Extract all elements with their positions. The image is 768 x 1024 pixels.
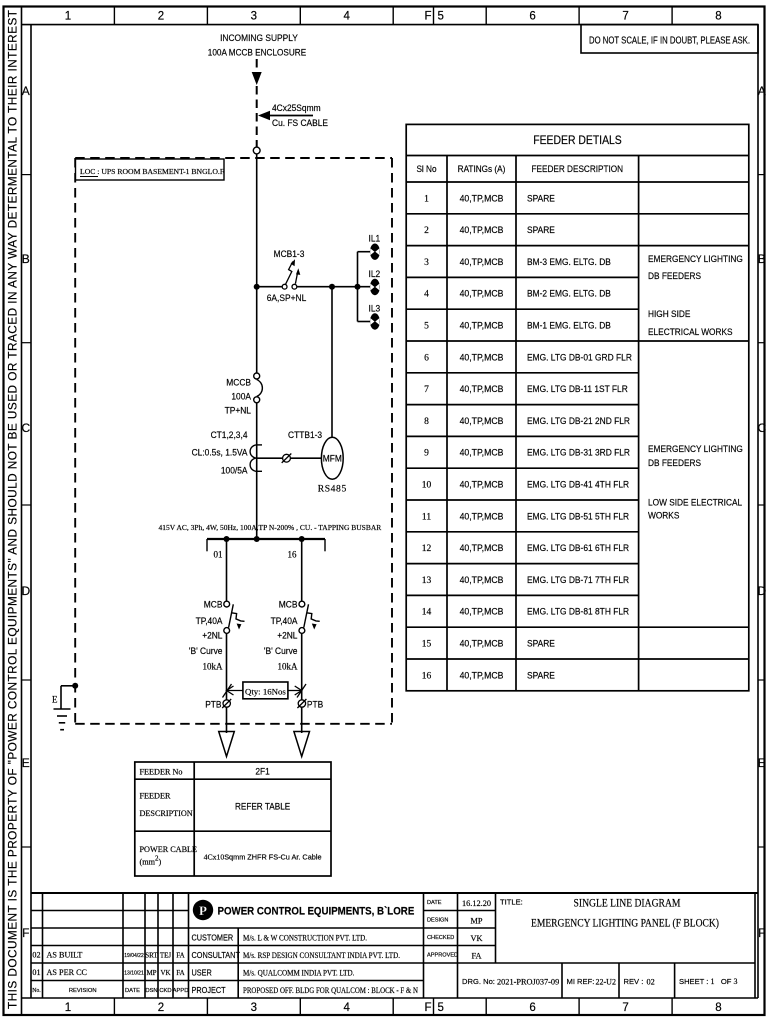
svg-text:4: 4 bbox=[343, 1002, 350, 1014]
svg-text:CKD: CKD bbox=[159, 988, 171, 994]
svg-text:8: 8 bbox=[715, 11, 721, 23]
svg-text:Cu. FS CABLE: Cu. FS CABLE bbox=[272, 117, 328, 128]
svg-text:EMG. LTG DB-81 8TH FLR: EMG. LTG DB-81 8TH FLR bbox=[527, 607, 629, 618]
svg-text:Sl No: Sl No bbox=[416, 164, 436, 174]
svg-text:MP: MP bbox=[146, 969, 156, 977]
svg-text:40,TP,MCB: 40,TP,MCB bbox=[460, 352, 504, 363]
svg-text:6: 6 bbox=[529, 11, 535, 23]
svg-text:CL:0.5s, 1.5VA: CL:0.5s, 1.5VA bbox=[192, 447, 249, 458]
svg-text:1: 1 bbox=[65, 1002, 71, 1014]
svg-text:415V AC, 3Ph, 4W, 50Hz, 100A,T: 415V AC, 3Ph, 4W, 50Hz, 100A,TP N-200% ,… bbox=[159, 523, 382, 532]
svg-text:13: 13 bbox=[422, 576, 432, 586]
svg-text:16: 16 bbox=[422, 671, 432, 681]
svg-text:01: 01 bbox=[32, 968, 40, 977]
svg-text:D: D bbox=[757, 584, 766, 598]
svg-text:BM-3 EMG. ELTG. DB: BM-3 EMG. ELTG. DB bbox=[527, 257, 611, 268]
svg-text:16: 16 bbox=[288, 550, 298, 560]
svg-text:7: 7 bbox=[622, 11, 628, 23]
svg-text:M/s. L & W CONSTRUCTION PVT. L: M/s. L & W CONSTRUCTION PVT. LTD. bbox=[243, 933, 367, 942]
svg-text:40,TP,MCB: 40,TP,MCB bbox=[460, 511, 504, 522]
svg-text:ELECTRICAL WORKS: ELECTRICAL WORKS bbox=[648, 327, 733, 337]
svg-text:C: C bbox=[21, 421, 30, 435]
svg-text:SPARE: SPARE bbox=[527, 639, 555, 650]
svg-text:EMG. LTG DB-61 6TH FLR: EMG. LTG DB-61 6TH FLR bbox=[527, 543, 629, 554]
svg-text:5: 5 bbox=[424, 322, 429, 332]
svg-text:100A: 100A bbox=[231, 391, 251, 402]
svg-text:DESCRIPTION: DESCRIPTION bbox=[140, 809, 193, 818]
svg-text:IL1: IL1 bbox=[369, 233, 381, 244]
svg-text:9: 9 bbox=[424, 449, 429, 459]
svg-text:100/5A: 100/5A bbox=[221, 465, 248, 476]
svg-text:P: P bbox=[199, 903, 207, 918]
svg-text:M/s. QUALCOMM INDIA PVT. LTD.: M/s. QUALCOMM INDIA PVT. LTD. bbox=[243, 968, 354, 977]
svg-text:40,TP,MCB: 40,TP,MCB bbox=[460, 257, 504, 268]
svg-text:VK: VK bbox=[160, 969, 170, 977]
svg-text:FEEDER DESCRIPTION: FEEDER DESCRIPTION bbox=[532, 164, 624, 174]
svg-text:BM-1 EMG. ELTG. DB: BM-1 EMG. ELTG. DB bbox=[527, 321, 611, 332]
svg-text:'B' Curve: 'B' Curve bbox=[189, 645, 223, 656]
svg-text:+2NL: +2NL bbox=[202, 630, 222, 641]
svg-text:LOC : UPS ROOM BASEMENT-1 BNGL: LOC : UPS ROOM BASEMENT-1 BNGLO.F bbox=[80, 167, 224, 176]
svg-text:40,TP,MCB: 40,TP,MCB bbox=[460, 193, 504, 204]
svg-text:4Cx10Sqmm ZHFR FS-Cu Ar. Cable: 4Cx10Sqmm ZHFR FS-Cu Ar. Cable bbox=[204, 853, 322, 862]
svg-text:12: 12 bbox=[422, 544, 432, 554]
svg-text:02: 02 bbox=[32, 951, 40, 960]
svg-text:E: E bbox=[22, 756, 30, 770]
svg-text:EMERGENCY LIGHTING: EMERGENCY LIGHTING bbox=[648, 254, 743, 264]
svg-text:1: 1 bbox=[65, 11, 71, 23]
svg-text:REFER TABLE: REFER TABLE bbox=[235, 802, 290, 812]
svg-text:8: 8 bbox=[715, 1002, 721, 1014]
svg-text:E: E bbox=[52, 695, 58, 705]
svg-text:D: D bbox=[21, 584, 30, 598]
svg-text:16.12.20: 16.12.20 bbox=[462, 899, 491, 908]
svg-text:PTB: PTB bbox=[205, 699, 221, 710]
svg-text:SHEET : 1 OF 3: SHEET : 1 OF 3 bbox=[679, 977, 738, 986]
svg-text:CHECKED: CHECKED bbox=[427, 935, 454, 941]
svg-text:+2NL: +2NL bbox=[277, 630, 297, 641]
svg-text:40,TP,MCB: 40,TP,MCB bbox=[460, 639, 504, 650]
svg-text:10: 10 bbox=[422, 481, 432, 491]
svg-text:F: F bbox=[424, 11, 431, 23]
svg-text:Qty: 16Nos: Qty: 16Nos bbox=[245, 687, 286, 697]
svg-text:EMG. LTG DB-21 2ND FLR: EMG. LTG DB-21 2ND FLR bbox=[527, 416, 630, 427]
svg-text:AS PER CC: AS PER CC bbox=[47, 968, 88, 977]
svg-text:TEJ: TEJ bbox=[160, 952, 172, 960]
svg-text:C: C bbox=[757, 421, 766, 435]
svg-text:6: 6 bbox=[529, 1002, 535, 1014]
svg-text:AS BUILT: AS BUILT bbox=[47, 951, 83, 960]
svg-text:EMG. LTG DB-51 5TH FLR: EMG. LTG DB-51 5TH FLR bbox=[527, 511, 629, 522]
svg-text:B: B bbox=[758, 252, 766, 266]
svg-text:4Cx25Sqmm: 4Cx25Sqmm bbox=[272, 102, 321, 113]
svg-text:5: 5 bbox=[437, 11, 443, 23]
svg-text:100A MCCB ENCLOSURE: 100A MCCB ENCLOSURE bbox=[208, 48, 306, 59]
svg-text:DB FEEDERS: DB FEEDERS bbox=[648, 271, 701, 281]
svg-text:IL3: IL3 bbox=[369, 302, 381, 313]
svg-text:INCOMING SUPPLY: INCOMING SUPPLY bbox=[220, 33, 298, 44]
svg-text:10kA: 10kA bbox=[278, 661, 299, 671]
svg-text:15: 15 bbox=[422, 640, 432, 650]
svg-text:MCB: MCB bbox=[279, 599, 298, 610]
svg-text:2: 2 bbox=[158, 11, 164, 23]
svg-text:F: F bbox=[22, 926, 29, 940]
svg-text:F: F bbox=[424, 1002, 431, 1014]
svg-text:40,TP,MCB: 40,TP,MCB bbox=[460, 448, 504, 459]
svg-text:01: 01 bbox=[214, 550, 223, 560]
svg-text:No.: No. bbox=[32, 988, 41, 994]
svg-text:F: F bbox=[758, 926, 765, 940]
svg-text:TP,40A: TP,40A bbox=[271, 615, 299, 626]
svg-text:E: E bbox=[758, 756, 766, 770]
svg-text:'B' Curve: 'B' Curve bbox=[264, 645, 298, 656]
svg-text:2: 2 bbox=[424, 226, 429, 236]
svg-text:7: 7 bbox=[424, 385, 429, 395]
svg-text:TITLE:: TITLE: bbox=[500, 898, 523, 907]
svg-text:RATINGs (A): RATINGs (A) bbox=[458, 164, 506, 174]
svg-text:BM-2 EMG. ELTG. DB: BM-2 EMG. ELTG. DB bbox=[527, 289, 611, 300]
svg-text:PROPOSED OFF. BLDG FOR QUALCOM: PROPOSED OFF. BLDG FOR QUALCOM : BLOCK -… bbox=[243, 986, 418, 995]
svg-text:EMG. LTG DB-41 4TH FLR: EMG. LTG DB-41 4TH FLR bbox=[527, 480, 629, 491]
svg-text:VK: VK bbox=[471, 934, 483, 943]
svg-text:IL2: IL2 bbox=[369, 268, 381, 279]
svg-text:EMG. LTG DB-01 GRD FLR: EMG. LTG DB-01 GRD FLR bbox=[527, 352, 632, 363]
svg-text:A: A bbox=[758, 84, 766, 98]
svg-text:3: 3 bbox=[251, 1002, 257, 1014]
svg-text:4: 4 bbox=[343, 11, 350, 23]
svg-text:TP,40A: TP,40A bbox=[196, 615, 224, 626]
svg-text:DRG. No:: DRG. No: bbox=[462, 977, 495, 986]
svg-text:SINGLE LINE DIAGRAM: SINGLE LINE DIAGRAM bbox=[574, 898, 681, 910]
svg-text:SRT: SRT bbox=[145, 952, 158, 960]
svg-text:EMG. LTG DB-11 1ST FLR: EMG. LTG DB-11 1ST FLR bbox=[527, 384, 628, 395]
svg-text:EMG. LTG DB-31 3RD FLR: EMG. LTG DB-31 3RD FLR bbox=[527, 448, 630, 459]
svg-text:PROJECT: PROJECT bbox=[192, 986, 226, 995]
svg-text:APPD: APPD bbox=[173, 988, 189, 994]
svg-text:13/10/21: 13/10/21 bbox=[124, 971, 144, 977]
svg-text:REV :: REV : bbox=[624, 977, 644, 986]
svg-text:2021-PROJ037-09: 2021-PROJ037-09 bbox=[497, 978, 559, 987]
svg-text:POWER CONTROL EQUIPMENTS, B`LO: POWER CONTROL EQUIPMENTS, B`LORE bbox=[218, 906, 415, 918]
svg-text:A: A bbox=[22, 84, 30, 98]
svg-text:4: 4 bbox=[424, 290, 429, 300]
svg-text:40,TP,MCB: 40,TP,MCB bbox=[460, 543, 504, 554]
svg-text:40,TP,MCB: 40,TP,MCB bbox=[460, 670, 504, 681]
svg-text:MI REF:: MI REF: bbox=[567, 977, 595, 986]
svg-text:USER: USER bbox=[192, 968, 212, 977]
svg-text:02: 02 bbox=[647, 978, 655, 987]
svg-text:11: 11 bbox=[422, 512, 431, 522]
svg-text:FEEDER No: FEEDER No bbox=[140, 768, 183, 777]
svg-text:DATE: DATE bbox=[427, 900, 442, 906]
svg-text:M/s. RSP DESIGN CONSULTANT IND: M/s. RSP DESIGN CONSULTANT INDIA PVT. LT… bbox=[243, 951, 400, 960]
svg-text:FA: FA bbox=[472, 952, 482, 961]
svg-text:LOW SIDE ELECTRICAL: LOW SIDE ELECTRICAL bbox=[648, 498, 742, 508]
svg-text:22-U2: 22-U2 bbox=[596, 978, 616, 987]
svg-text:B: B bbox=[22, 252, 30, 266]
svg-text:CT1,2,3,4: CT1,2,3,4 bbox=[211, 429, 248, 440]
svg-text:CONSULTANT: CONSULTANT bbox=[192, 951, 240, 960]
svg-text:40,TP,MCB: 40,TP,MCB bbox=[460, 289, 504, 300]
svg-text:EMG. LTG DB-71 7TH FLR: EMG. LTG DB-71 7TH FLR bbox=[527, 575, 629, 586]
svg-text:7: 7 bbox=[622, 1002, 628, 1014]
svg-text:5: 5 bbox=[437, 1002, 443, 1014]
svg-text:DSN: DSN bbox=[145, 988, 157, 994]
svg-text:3: 3 bbox=[424, 258, 429, 268]
svg-text:3: 3 bbox=[251, 11, 257, 23]
svg-text:FA: FA bbox=[176, 952, 184, 960]
svg-text:MP: MP bbox=[471, 917, 483, 926]
svg-text:MFM: MFM bbox=[323, 454, 342, 464]
svg-text:2: 2 bbox=[158, 1002, 164, 1014]
svg-text:40,TP,MCB: 40,TP,MCB bbox=[460, 480, 504, 491]
svg-text:40,TP,MCB: 40,TP,MCB bbox=[460, 384, 504, 395]
svg-text:19/04/22: 19/04/22 bbox=[124, 953, 144, 959]
svg-text:MCCB: MCCB bbox=[226, 377, 251, 388]
svg-text:REVISION: REVISION bbox=[69, 988, 97, 994]
svg-text:CUSTOMER: CUSTOMER bbox=[192, 933, 234, 942]
svg-text:DATE: DATE bbox=[125, 988, 140, 994]
svg-text:40,TP,MCB: 40,TP,MCB bbox=[460, 225, 504, 236]
svg-text:MCB: MCB bbox=[204, 599, 223, 610]
svg-text:SPARE: SPARE bbox=[527, 670, 555, 681]
svg-text:MCB1-3: MCB1-3 bbox=[274, 248, 305, 259]
svg-text:TP+NL: TP+NL bbox=[225, 405, 251, 416]
svg-text:2F1: 2F1 bbox=[255, 767, 270, 777]
svg-text:RS485: RS485 bbox=[318, 484, 347, 495]
svg-text:PTB: PTB bbox=[307, 699, 323, 710]
svg-text:FEEDER DETIALS: FEEDER DETIALS bbox=[533, 135, 622, 147]
svg-text:EMERGENCY LIGHTING: EMERGENCY LIGHTING bbox=[648, 444, 743, 454]
svg-text:40,TP,MCB: 40,TP,MCB bbox=[460, 321, 504, 332]
svg-text:8: 8 bbox=[424, 417, 429, 427]
svg-text:APPROVED: APPROVED bbox=[427, 953, 458, 959]
svg-text:FEEDER: FEEDER bbox=[140, 792, 171, 801]
svg-text:WORKS: WORKS bbox=[648, 511, 679, 521]
svg-text:DESIGN: DESIGN bbox=[427, 918, 448, 924]
svg-text:CTTB1-3: CTTB1-3 bbox=[288, 429, 322, 440]
svg-text:FA: FA bbox=[176, 969, 184, 977]
svg-text:THIS DOCUMENT IS THE PROPERTY: THIS DOCUMENT IS THE PROPERTY OF "POWER … bbox=[5, 10, 19, 1009]
svg-text:1: 1 bbox=[424, 194, 429, 204]
svg-text:40,TP,MCB: 40,TP,MCB bbox=[460, 416, 504, 427]
svg-text:6: 6 bbox=[424, 353, 429, 363]
svg-text:SPARE: SPARE bbox=[527, 225, 555, 236]
svg-text:6A,SP+NL: 6A,SP+NL bbox=[267, 292, 307, 303]
svg-text:HIGH SIDE: HIGH SIDE bbox=[648, 309, 690, 319]
svg-text:EMERGENCY LIGHTING PANEL (F BL: EMERGENCY LIGHTING PANEL (F BLOCK) bbox=[531, 918, 719, 930]
svg-text:POWER CABLE: POWER CABLE bbox=[140, 845, 198, 854]
svg-text:DO NOT SCALE, IF IN DOUBT, PLE: DO NOT SCALE, IF IN DOUBT, PLEASE ASK. bbox=[589, 36, 750, 47]
svg-text:40,TP,MCB: 40,TP,MCB bbox=[460, 607, 504, 618]
svg-text:DB FEEDERS: DB FEEDERS bbox=[648, 458, 701, 468]
svg-text:40,TP,MCB: 40,TP,MCB bbox=[460, 575, 504, 586]
svg-text:10kA: 10kA bbox=[203, 661, 224, 671]
svg-text:SPARE: SPARE bbox=[527, 193, 555, 204]
svg-text:14: 14 bbox=[422, 608, 432, 618]
